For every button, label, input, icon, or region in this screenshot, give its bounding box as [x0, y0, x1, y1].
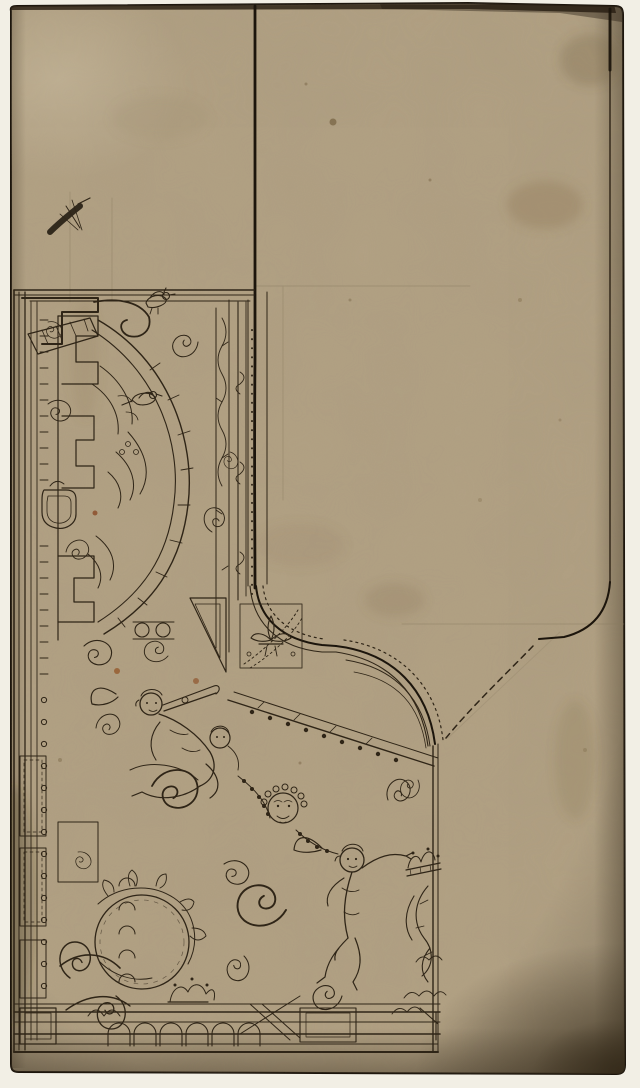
paper-sheet — [0, 0, 640, 1088]
artwork-scan — [0, 0, 640, 1088]
rust-spot — [114, 668, 120, 674]
center-fold-line — [255, 6, 256, 588]
rust-spot — [193, 678, 199, 684]
rust-spot — [93, 511, 98, 516]
scanned-drawing-page — [0, 0, 640, 1088]
right-border-line — [610, 9, 611, 582]
right-edge-shadow — [594, 4, 624, 1074]
